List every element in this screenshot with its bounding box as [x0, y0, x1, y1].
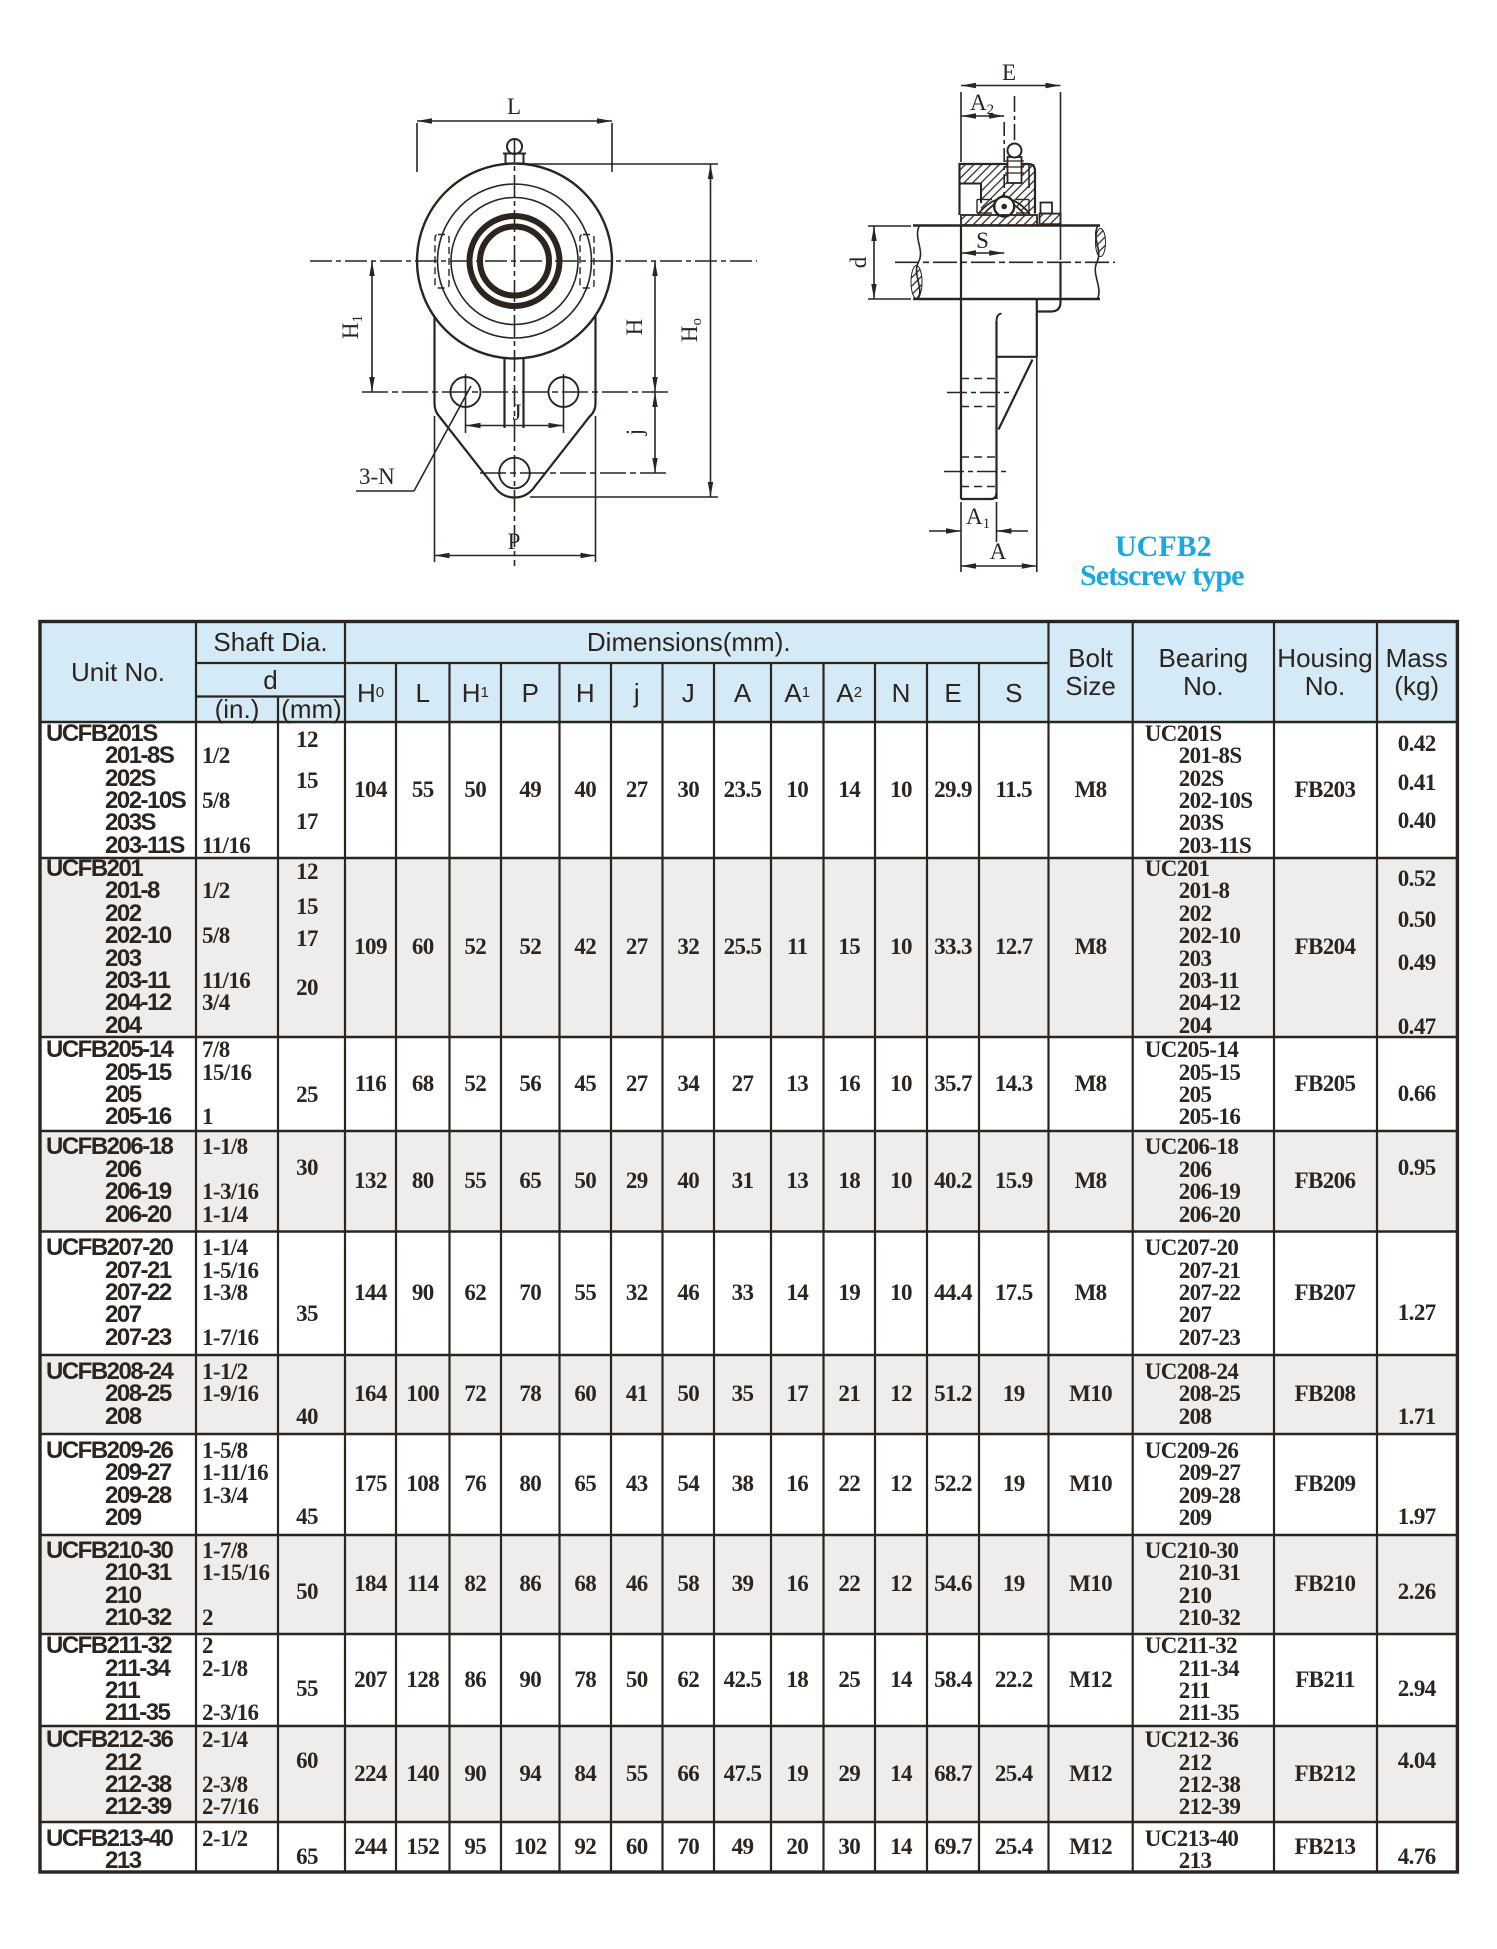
- svg-text:Setscrew type: Setscrew type: [1080, 559, 1244, 592]
- svg-text:S: S: [976, 228, 989, 253]
- svg-text:Ho: Ho: [677, 318, 705, 342]
- svg-text:P: P: [508, 529, 521, 554]
- svg-text:A: A: [990, 539, 1007, 564]
- svg-text:H1: H1: [338, 315, 366, 339]
- svg-text:E: E: [1002, 60, 1016, 85]
- svg-text:L: L: [507, 94, 521, 119]
- svg-text:A2: A2: [970, 90, 994, 118]
- svg-text:d: d: [846, 256, 871, 268]
- svg-text:j: j: [622, 429, 647, 436]
- svg-text:3-N: 3-N: [359, 464, 395, 489]
- svg-text:J: J: [513, 400, 522, 425]
- svg-text:A1: A1: [966, 504, 990, 532]
- svg-text:H: H: [622, 319, 647, 336]
